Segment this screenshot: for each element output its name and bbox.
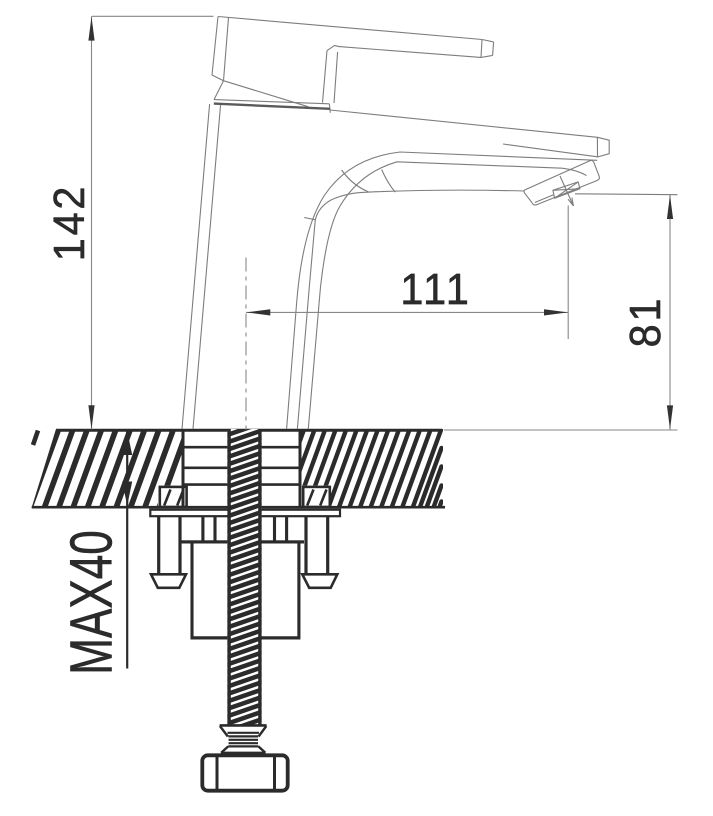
svg-text:81: 81 xyxy=(621,296,669,348)
svg-text:111: 111 xyxy=(400,265,471,313)
svg-text:MAX40: MAX40 xyxy=(59,530,125,675)
svg-text:142: 142 xyxy=(45,184,93,261)
